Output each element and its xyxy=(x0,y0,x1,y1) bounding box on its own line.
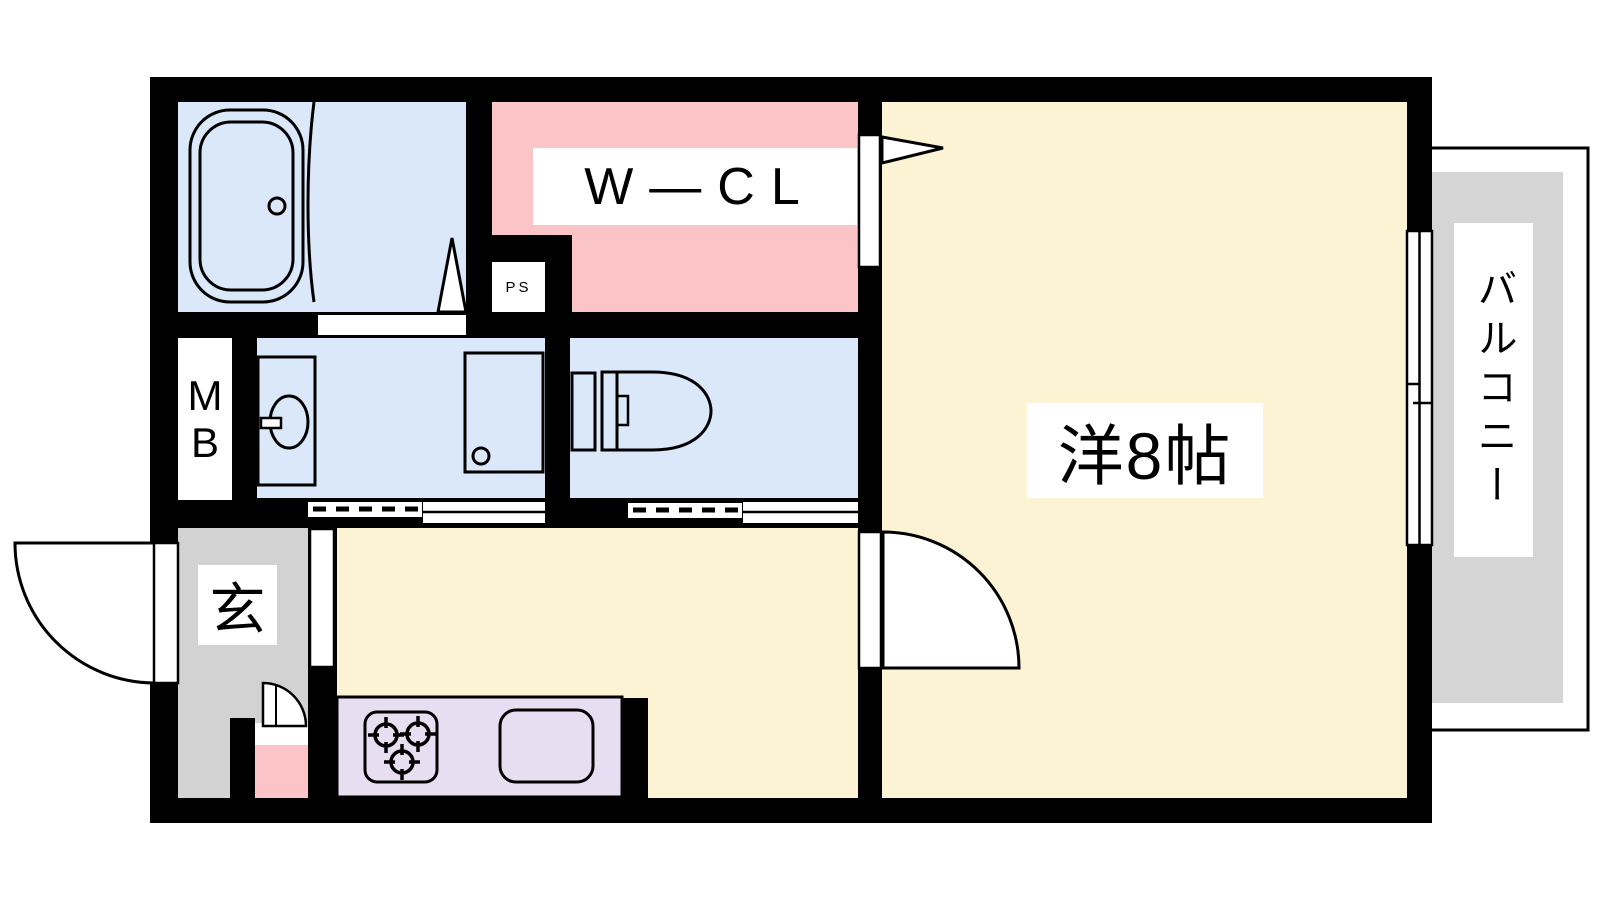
walk-in-closet-label: W―CL xyxy=(533,148,857,225)
faucet-icon xyxy=(261,418,281,428)
wall-bottom xyxy=(150,798,1432,823)
wall-counter-stub xyxy=(622,698,648,798)
toilet-floor xyxy=(570,336,858,498)
meter-box-line2: B xyxy=(191,419,219,466)
floor-plan: W―CL PS M B 玄 洋8帖 バルコニー xyxy=(0,0,1600,900)
balcony-window xyxy=(1407,231,1432,545)
closet-door-leaf xyxy=(859,135,880,267)
western-room-door-leaf xyxy=(859,532,881,668)
meter-box-label: M B xyxy=(178,338,232,500)
meter-box-line1: M xyxy=(188,372,223,419)
western-room-label: 洋8帖 xyxy=(1027,403,1263,498)
bathroom-floor xyxy=(178,102,466,314)
bathroom-door-opening xyxy=(318,315,466,335)
kitchen-door-leaf xyxy=(310,529,334,667)
balcony-label: バルコニー xyxy=(1454,223,1533,557)
shoebox xyxy=(255,745,308,798)
floor-plan-drawing xyxy=(0,0,1600,900)
wall-left xyxy=(150,77,178,823)
front-door-swing xyxy=(15,543,155,683)
pipe-space-label: PS xyxy=(492,262,545,312)
entrance-label: 玄 xyxy=(198,565,277,645)
wall-under-bath xyxy=(178,312,882,338)
washroom-floor xyxy=(257,336,545,498)
wall-top xyxy=(150,77,1432,102)
wall-shoebox xyxy=(230,718,255,798)
front-door-leaf xyxy=(154,543,178,683)
kitchen-counter xyxy=(337,697,622,797)
